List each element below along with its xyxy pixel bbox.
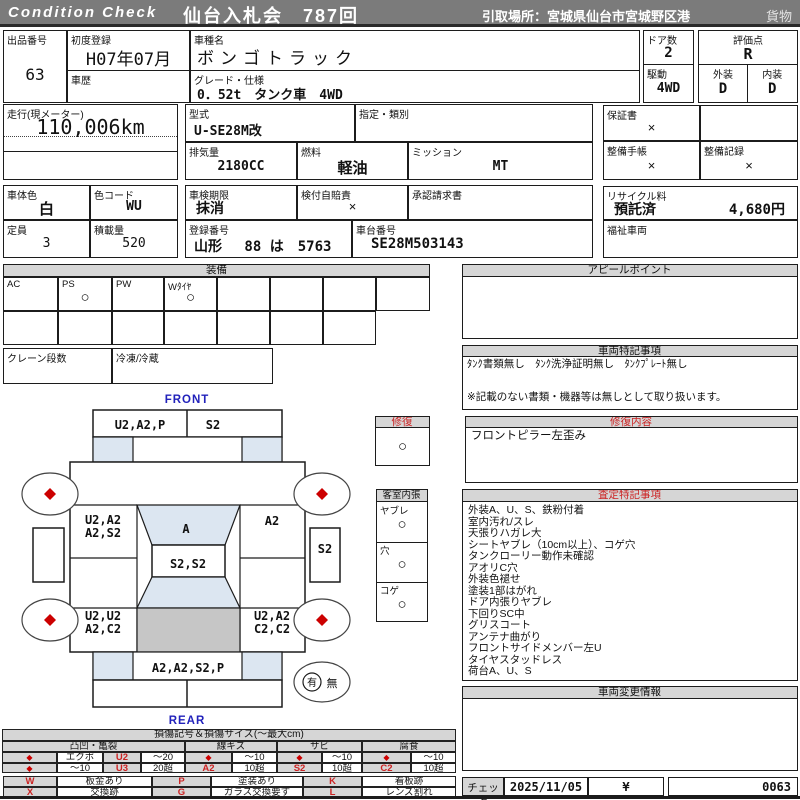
rear-window-trapezoid	[137, 577, 240, 608]
freezer-label: 冷凍/冷蔵	[116, 350, 159, 365]
check-date-cell: 2025/11/05	[504, 777, 588, 796]
special-notes-line2: ※記載のない書類・機器等は無しとして取り扱います。	[467, 392, 726, 404]
legend-diamond-icon: ◆	[185, 752, 232, 763]
history-label: 車歴	[71, 72, 91, 87]
legend-group-dents: 凸凹・亀裂	[2, 741, 185, 752]
chassis-number-value: SE28M503143	[371, 236, 464, 252]
interior-grade-value: D	[748, 81, 798, 97]
repair-detail-header: 修復内容	[465, 416, 798, 428]
drive-cell: 駆動 4WD	[643, 64, 694, 103]
recycle-fee-value: 4,680円	[729, 199, 785, 219]
right-rear-panel-code-1: U2,A2	[254, 609, 290, 623]
warranty-cell: 保証書 ×	[603, 105, 700, 141]
legend-mark-w: W	[3, 776, 57, 787]
legend-size-rust-small: 〜10	[322, 752, 362, 763]
check-number-cell: 0063	[668, 777, 798, 796]
repair-flag-header: 修復	[375, 416, 430, 428]
cabin-item-tear: ヤブレ ○	[377, 502, 427, 543]
first-registration-cell: 初度登録 H07年07月	[67, 30, 190, 71]
repair-flag-panel: 修復 ○	[375, 416, 430, 466]
registration-number-value: 山形 88 は 5763	[194, 236, 331, 256]
header-bar: Condition Check 仙台入札会 787回 引取場所：宮城県仙台市宮城…	[0, 0, 800, 27]
legend-group-scratch: 線キズ	[185, 741, 277, 752]
body-color-cell: 車体色 白	[3, 185, 90, 220]
assessment-notes-panel: 査定特記事項 外装A、U、S、鉄粉付着 室内汚れ/スレ 天張りハガレ大 シートヤ…	[462, 489, 798, 681]
legend-dent-small-label: エクボ	[57, 752, 103, 763]
legend-size-u2: 〜20	[141, 752, 185, 763]
repair-flag-mark: ○	[376, 439, 429, 454]
doors-value: 2	[644, 45, 693, 61]
windshield-code: S2,S2	[170, 557, 206, 571]
score-cell: 評価点 R	[698, 30, 798, 66]
legend-code-s2: S2	[277, 763, 322, 774]
capacity-value: 3	[4, 236, 89, 251]
interior-grade-label: 内装	[748, 66, 798, 81]
spare-no-label: 無	[327, 676, 338, 690]
left-front-panel-code-2: A2,S2	[85, 526, 121, 540]
crane-cell: クレーン段数	[3, 348, 112, 384]
cabin-tear-label: ヤブレ	[380, 503, 409, 517]
cabin-header: 客室内張	[376, 489, 428, 502]
check-label-cell: チェック	[462, 777, 504, 796]
legend-dent-size-label: 〜10	[57, 763, 103, 774]
grade-cell: グレード・仕様 0．52t タンク車 4WD	[190, 70, 640, 103]
check-date: 2025/11/05	[505, 780, 587, 794]
equipment-cell-pw: PW	[112, 277, 164, 311]
color-code-cell: 色コード WU	[90, 185, 178, 220]
legend-mark-p: P	[152, 776, 211, 787]
equipment-cell-ac: AC	[3, 277, 58, 311]
model-name-value: ボンゴトラック	[197, 44, 358, 69]
load-capacity-value: 520	[91, 236, 177, 251]
displacement-cell: 排気量 2180CC	[185, 142, 297, 180]
displacement-label: 排気量	[189, 144, 219, 159]
legend-code-u2: U2	[103, 752, 141, 763]
warranty-value: ×	[604, 120, 699, 135]
legend-size-a2: 10超	[232, 763, 277, 774]
grade-value: 0．52t タンク車 4WD	[197, 84, 343, 103]
right-side-code: S2	[318, 542, 332, 556]
registration-number-cell: 登録番号 山形 88 は 5763	[185, 220, 352, 258]
front-bumper-left-code: U2,A2,P	[115, 418, 166, 432]
equipment-cell-r2-2	[58, 311, 112, 345]
capacity-cell: 定員 3	[3, 220, 90, 258]
repair-detail-text: フロントピラー左歪み	[471, 431, 586, 443]
right-rear-panel-code-2: C2,C2	[254, 622, 290, 636]
drive-value: 4WD	[644, 81, 693, 96]
vehicle-category: 貨物	[766, 6, 792, 25]
auction-condition-sheet: Condition Check 仙台入札会 787回 引取場所：宮城県仙台市宮城…	[0, 0, 800, 800]
cargo-bed	[137, 608, 240, 652]
body-color-value: 白	[4, 198, 89, 219]
model-code-cell: 型式 U-SE28M改	[185, 104, 355, 142]
approval-request-label: 承認請求書	[412, 187, 462, 202]
legend-diamond-icon: ◆	[277, 752, 322, 763]
inspection-value: 抹消	[196, 198, 224, 218]
lot-number-value: 63	[4, 65, 66, 84]
rear-direction-label: REAR	[169, 715, 206, 727]
left-rear-panel-code-1: U2,U2	[85, 609, 121, 623]
welfare-vehicle-label: 福祉車両	[607, 222, 647, 237]
equipment-cell-ps: PS ○	[58, 277, 112, 311]
exterior-grade-value: D	[699, 81, 747, 97]
doors-cell: ドア数 2	[643, 30, 694, 66]
model-code-label: 型式	[189, 106, 209, 121]
maintenance-book-cell: 整備手帳 ×	[603, 141, 700, 180]
legend-group-rust: サビ	[277, 741, 362, 752]
assessment-note: フロントサイドメンバー左U	[468, 643, 635, 655]
cabin-hole-mark: ○	[377, 557, 427, 572]
hood-corner-left	[93, 437, 133, 462]
insurance-value: ×	[298, 199, 407, 214]
capacity-label: 定員	[7, 222, 27, 237]
assessment-note: 外装色褪せ	[468, 574, 635, 586]
roof-code: A	[182, 522, 190, 536]
appeal-header: アピールポイント	[462, 264, 798, 277]
check-number: 0063	[762, 780, 791, 794]
fuel-cell: 燃料 軽油	[297, 142, 408, 180]
cabin-item-burn: コゲ ○	[377, 582, 427, 622]
warranty-extra-cell	[700, 105, 798, 141]
cabin-burn-label: コゲ	[380, 583, 399, 597]
maintenance-record-cell: 整備記録 ×	[700, 141, 798, 180]
left-front-panel-code-1: U2,A2	[85, 513, 121, 527]
rear-corner-left	[93, 652, 133, 680]
exterior-grade-label: 外装	[699, 66, 747, 81]
assessment-notes-header: 査定特記事項	[462, 489, 798, 502]
equipment-cell-r2-7	[323, 311, 376, 345]
appeal-panel: アピールポイント	[462, 264, 798, 339]
left-side-step	[33, 528, 64, 582]
check-inspector-cell: ¥	[588, 777, 664, 796]
left-rear-panel-code-2: A2,C2	[85, 622, 121, 636]
equipment-cell-r2-1	[3, 311, 58, 345]
vehicle-damage-diagram: FRONT U2,A2,P S2 A S2,S2 U2,A2 A2,S2 A2 …	[0, 393, 370, 738]
equipment-cell-6	[270, 277, 323, 311]
assessment-note: 外装A、U、S、鉄粉付着	[468, 505, 635, 517]
drive-label: 駆動	[647, 66, 667, 81]
legend-diamond-icon: ◆	[2, 752, 57, 763]
spare-yes-label: 有	[307, 676, 317, 689]
legend-mark-p-label: 塗装あり	[211, 776, 303, 787]
mileage-cell: 走行(現メーター) 110,006km	[3, 104, 178, 180]
maintenance-book-label: 整備手帳	[607, 143, 647, 158]
cabin-hole-label: 穴	[380, 543, 390, 557]
first-registration-value: H07年07月	[68, 45, 189, 70]
equipment-cell-8	[376, 277, 430, 311]
transmission-label: ミッション	[412, 144, 462, 159]
color-code-value: WU	[91, 199, 177, 214]
special-notes-header: 車両特記事項	[462, 345, 798, 357]
legend-size-c2: 10超	[411, 763, 456, 774]
check-inspector: ¥	[589, 780, 663, 794]
freezer-cell: 冷凍/冷蔵	[112, 348, 273, 384]
change-info-panel: 車両変更情報	[462, 686, 798, 771]
approval-request-cell: 承認請求書	[408, 185, 593, 220]
class-designation-cell: 指定・類別	[355, 104, 593, 142]
repair-detail-panel: 修復内容 フロントピラー左歪み	[465, 416, 798, 483]
equipment-cell-r2-4	[164, 311, 217, 345]
assessment-note: グリスコート	[468, 620, 635, 632]
legend-mark-w-label: 板金あり	[57, 776, 152, 787]
maintenance-record-label: 整備記録	[704, 143, 744, 158]
load-capacity-cell: 積載量 520	[90, 220, 178, 258]
legend-diamond-icon: ◆	[2, 763, 57, 774]
special-notes-panel: 車両特記事項 ﾀﾝｸ書類無し ﾀﾝｸ洗浄証明無し ﾀﾝｸﾌﾟﾚｰﾄ無し ※記載の…	[462, 345, 798, 410]
model-code-value: U-SE28M改	[194, 120, 262, 139]
cabin-item-hole: 穴 ○	[377, 542, 427, 583]
legend-size-scratch-small: 〜10	[232, 752, 277, 763]
recycle-fee-cell: リサイクル料 預託済 4,680円	[603, 186, 798, 220]
equipment-cell-r2-3	[112, 311, 164, 345]
equipment-cell-r2-5	[217, 311, 270, 345]
equipment-cell-r2-6	[270, 311, 323, 345]
legend-code-c2: C2	[362, 763, 411, 774]
lot-number-label: 出品番号	[7, 32, 47, 47]
spare-tire-indicator	[294, 662, 350, 702]
pickup-location: 引取場所：宮城県仙台市宮城野区港	[482, 6, 690, 25]
chassis-number-cell: 車台番号 SE28M503143	[352, 220, 593, 258]
crane-label: クレーン段数	[7, 350, 67, 365]
load-capacity-label: 積載量	[94, 222, 124, 237]
legend-diamond-icon: ◆	[362, 752, 411, 763]
maintenance-record-value: ×	[701, 158, 797, 173]
mileage-divider-dotted	[4, 136, 177, 137]
interior-grade-cell: 内装 D	[747, 64, 799, 103]
legend-mark-k: K	[303, 776, 362, 787]
transmission-cell: ミッション MT	[408, 142, 593, 180]
equipment-label-pw: PW	[116, 279, 131, 290]
transmission-value: MT	[409, 159, 592, 174]
front-direction-label: FRONT	[165, 394, 210, 406]
class-designation-label: 指定・類別	[359, 106, 409, 121]
mileage-divider-solid	[4, 151, 177, 152]
equipment-mark-wtire: ○	[165, 290, 216, 305]
assessment-note: タンクローリー動作未確認	[468, 551, 635, 563]
legend-code-u3: U3	[103, 763, 141, 774]
legend-mark-k-label: 看板跡	[362, 776, 456, 787]
rear-gate-code: A2,A2,S2,P	[152, 661, 224, 675]
assessment-note: 荷台A、U、S	[468, 666, 635, 678]
equipment-cell-wtire: Wﾀｲﾔ ○	[164, 277, 217, 311]
model-name-cell: 車種名 ボンゴトラック	[190, 30, 640, 71]
legend-code-a2: A2	[185, 763, 232, 774]
exterior-grade-cell: 外装 D	[698, 64, 748, 103]
history-cell: 車歴	[67, 70, 190, 103]
assessment-notes-list: 外装A、U、S、鉄粉付着 室内汚れ/スレ 天張りハガレ大 シートヤブレ（10cm…	[468, 505, 635, 678]
insurance-cell: 検付自賠責 ×	[297, 185, 408, 220]
score-value: R	[699, 45, 797, 63]
equipment-mark-ps: ○	[59, 290, 111, 305]
equipment-cell-5	[217, 277, 270, 311]
auction-title: 仙台入札会 787回	[183, 2, 359, 28]
cabin-burn-mark: ○	[377, 597, 427, 612]
equipment-label-ac: AC	[7, 279, 20, 290]
chassis-number-label: 車台番号	[356, 222, 396, 237]
front-bumper-right-code: S2	[206, 418, 220, 432]
registration-number-label: 登録番号	[189, 222, 229, 237]
bottom-border	[0, 796, 800, 799]
lot-number-cell: 出品番号 63	[3, 30, 67, 103]
equipment-cell-7	[323, 277, 376, 311]
hood-corner-right	[242, 437, 282, 462]
fuel-value: 軽油	[298, 157, 407, 178]
assessment-note: ドア内張りヤブレ	[468, 597, 635, 609]
legend-group-corrosion: 腐食	[362, 741, 456, 752]
brand-logo: Condition Check	[8, 4, 157, 21]
inspection-cell: 車検期限 抹消	[185, 185, 297, 220]
equipment-label-ps: PS	[62, 279, 75, 290]
special-notes-line1: ﾀﾝｸ書類無し ﾀﾝｸ洗浄証明無し ﾀﾝｸﾌﾟﾚｰﾄ無し	[467, 359, 688, 371]
legend-size-u3: 20超	[141, 763, 185, 774]
legend-title: 損傷記号＆損傷サイズ(〜最大cm)	[2, 729, 456, 741]
equipment-header: 装備	[3, 264, 430, 277]
welfare-vehicle-cell: 福祉車両	[603, 220, 798, 258]
rear-corner-right	[242, 652, 282, 680]
cabin-panel: 客室内張 ヤブレ ○ 穴 ○ コゲ ○	[376, 489, 428, 622]
maintenance-book-value: ×	[604, 158, 699, 173]
recycle-status-value: 預託済	[614, 199, 656, 219]
cabin-tear-mark: ○	[377, 517, 427, 532]
legend-size-s2: 10超	[322, 763, 362, 774]
assessment-note: 天張りハガレ大	[468, 528, 635, 540]
right-front-panel-code: A2	[265, 514, 279, 528]
change-info-header: 車両変更情報	[462, 686, 798, 699]
legend-size-corrosion-small: 〜10	[411, 752, 456, 763]
displacement-value: 2180CC	[186, 159, 296, 174]
